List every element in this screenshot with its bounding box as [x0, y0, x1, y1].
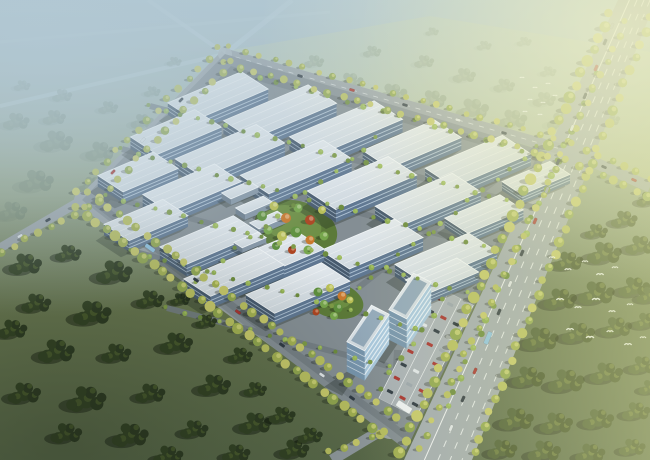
rendering-canvas — [0, 0, 650, 460]
vignette — [0, 0, 650, 460]
atmosphere-overlay — [0, 0, 650, 460]
aerial-rendering — [0, 0, 650, 460]
